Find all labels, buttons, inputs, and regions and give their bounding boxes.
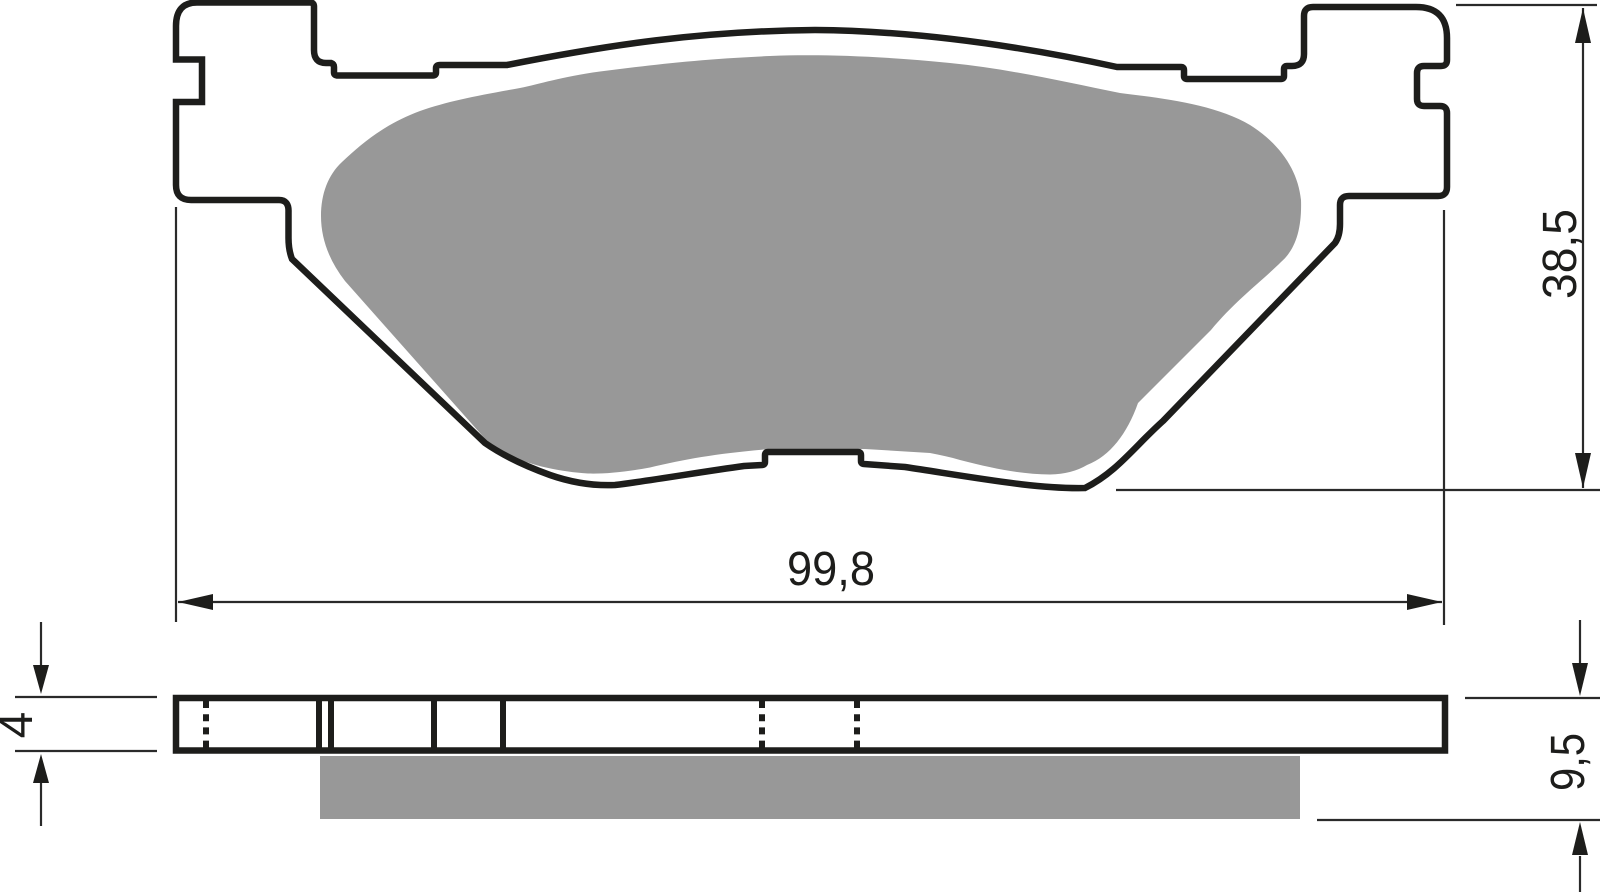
svg-text:99,8: 99,8 bbox=[787, 543, 875, 596]
svg-text:4: 4 bbox=[0, 712, 43, 739]
svg-text:38,5: 38,5 bbox=[1534, 209, 1587, 299]
svg-text:9,5: 9,5 bbox=[1542, 733, 1595, 791]
